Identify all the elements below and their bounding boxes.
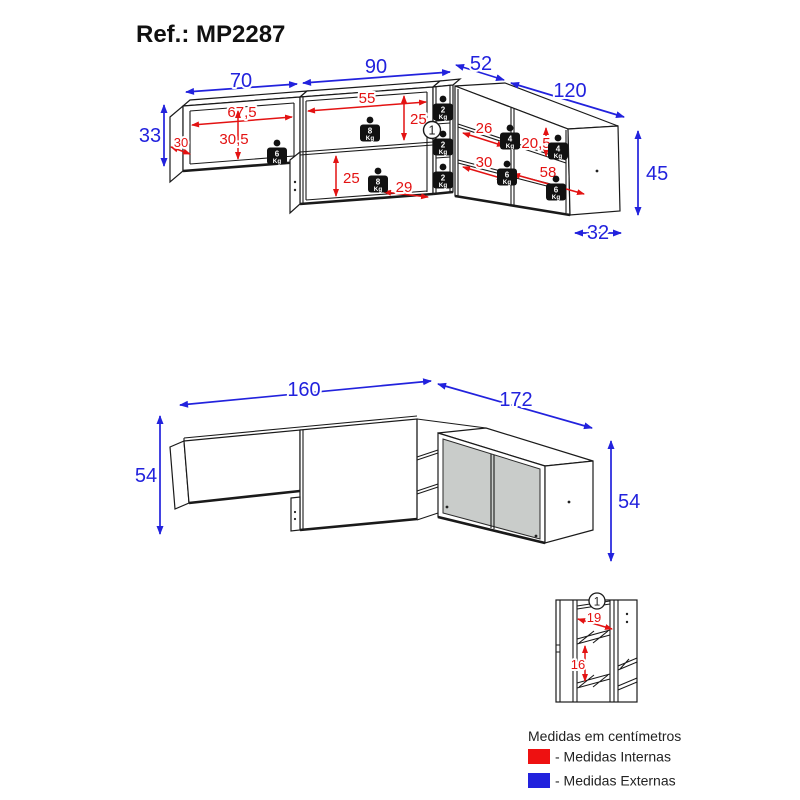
dim-left-inner-width: 67,5 xyxy=(227,104,256,121)
assembled-middle-cabinet xyxy=(291,416,417,531)
page-title: Ref.: MP2287 xyxy=(136,21,285,48)
svg-text:Kg: Kg xyxy=(374,186,383,193)
dim-right-top-height: 20,5 xyxy=(521,135,550,152)
dim-right-middle-width: 30 xyxy=(476,154,493,171)
top-exploded-view: 70 90 52 120 33 45 32 67,5 30,5 30 55 25 xyxy=(139,53,668,244)
svg-text:Kg: Kg xyxy=(273,158,282,165)
svg-text:1: 1 xyxy=(594,597,600,609)
dim-left-depth: 30 xyxy=(174,135,188,150)
dim-right-width: 120 xyxy=(553,80,586,102)
dim-assembled-right-height: 54 xyxy=(618,491,640,513)
dim-assembled-side-width: 172 xyxy=(499,389,532,411)
legend-external-label: - Medidas Externas xyxy=(555,773,676,789)
dim-detail-width: 19 xyxy=(587,610,601,625)
legend-internal-label: - Medidas Internas xyxy=(555,749,671,765)
dim-middle-bottom-height: 25 xyxy=(343,170,360,187)
legend: Medidas em centímetros - Medidas Interna… xyxy=(528,728,681,789)
svg-text:Kg: Kg xyxy=(552,194,561,201)
assembled-view: 160 54 172 54 xyxy=(135,379,640,561)
svg-text:Kg: Kg xyxy=(439,114,448,121)
dim-left-width: 70 xyxy=(230,70,252,92)
dim-detail-height: 16 xyxy=(571,657,585,672)
dim-assembled-left-height: 54 xyxy=(135,465,157,487)
detail-marker-number: 1 xyxy=(429,124,436,138)
dim-middle-width: 90 xyxy=(365,56,387,78)
svg-text:Kg: Kg xyxy=(506,143,515,150)
dim-right-depth: 32 xyxy=(587,222,609,244)
dim-right-height: 45 xyxy=(646,163,668,185)
detail-marker-top: 1 xyxy=(424,122,441,139)
detail-view: 1 19 16 xyxy=(556,593,637,702)
svg-text:Kg: Kg xyxy=(366,135,375,142)
dim-left-height: 33 xyxy=(139,125,161,147)
legend-external-swatch xyxy=(528,773,550,788)
dim-right-top-width: 26 xyxy=(476,120,493,137)
assembled-left-cabinet xyxy=(170,427,300,509)
svg-text:Kg: Kg xyxy=(503,179,512,186)
dimension-diagram-page: Ref.: MP2287 xyxy=(0,0,800,800)
legend-heading: Medidas em centímetros xyxy=(528,728,681,744)
assembled-right-wing xyxy=(438,428,593,543)
legend-internal-swatch xyxy=(528,749,550,764)
dim-middle-inner-width: 55 xyxy=(359,90,376,107)
svg-text:Kg: Kg xyxy=(554,153,563,160)
dim-assembled-front-width: 160 xyxy=(287,379,320,401)
detail-marker: 1 xyxy=(589,593,605,609)
dim-left-inner-height: 30,5 xyxy=(219,131,248,148)
svg-text:Kg: Kg xyxy=(439,182,448,189)
svg-text:Kg: Kg xyxy=(439,149,448,156)
dim-corner-width: 52 xyxy=(470,53,492,75)
dim-middle-bottom-depth: 29 xyxy=(396,179,413,196)
drawing-canvas: Ref.: MP2287 xyxy=(0,0,800,800)
